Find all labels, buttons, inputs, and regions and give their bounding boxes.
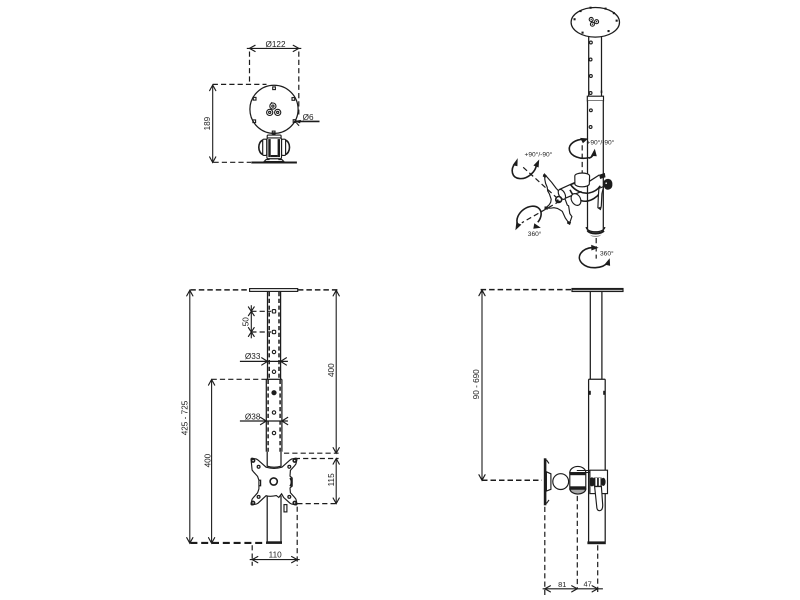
svg-text:Ø38: Ø38 <box>245 412 261 421</box>
svg-text:400: 400 <box>327 363 336 377</box>
svg-text:425 - 725: 425 - 725 <box>180 400 189 435</box>
svg-text:Ø33: Ø33 <box>245 352 261 361</box>
svg-text:81: 81 <box>558 580 566 589</box>
svg-text:+90°/-90°: +90°/-90° <box>525 151 553 159</box>
svg-text:+90°/-90°: +90°/-90° <box>587 139 615 147</box>
svg-text:90 - 690: 90 - 690 <box>472 369 481 399</box>
svg-text:189: 189 <box>203 116 212 130</box>
svg-text:400: 400 <box>203 453 212 467</box>
svg-text:115: 115 <box>327 473 336 486</box>
svg-text:110: 110 <box>269 551 282 560</box>
svg-text:Ø6: Ø6 <box>303 113 314 122</box>
svg-text:360°: 360° <box>528 230 542 238</box>
svg-text:47: 47 <box>583 580 591 589</box>
svg-text:50: 50 <box>241 317 250 327</box>
svg-text:360°: 360° <box>600 250 614 258</box>
